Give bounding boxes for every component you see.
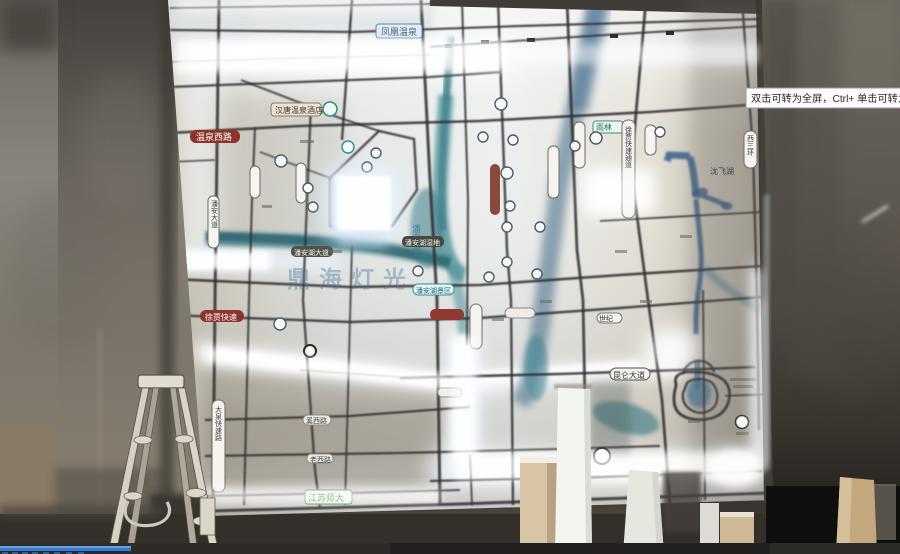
svg-text:沈飞湖: 沈飞湖 — [710, 166, 734, 176]
svg-text:双击可转为全屏，Ctrl+ 单击可转为: 双击可转为全屏，Ctrl+ 单击可转为 — [751, 92, 900, 105]
svg-text:奚西路: 奚西路 — [306, 416, 327, 425]
svg-text:鼎海灯光: 鼎海灯光 — [287, 266, 415, 292]
svg-text:潘安湖大道: 潘安湖大道 — [294, 248, 329, 257]
svg-text:徐贾快速: 徐贾快速 — [205, 312, 237, 322]
svg-text:温泉西路: 温泉西路 — [196, 131, 232, 142]
svg-text:昆仑大道: 昆仑大道 — [613, 370, 645, 380]
svg-text:徐贾快速通道: 徐贾快速通道 — [625, 125, 633, 169]
svg-text:老西路: 老西路 — [310, 455, 331, 464]
svg-text:西三环: 西三环 — [747, 135, 755, 157]
svg-text:潘安湖景区: 潘安湖景区 — [416, 286, 451, 295]
svg-text:世纪: 世纪 — [599, 314, 613, 323]
svg-text:凤凰温泉: 凤凰温泉 — [381, 26, 417, 37]
svg-text:雨林: 雨林 — [596, 122, 612, 132]
svg-text:大泉快速路: 大泉快速路 — [215, 405, 223, 442]
svg-text:汉唐温泉酒店: 汉唐温泉酒店 — [275, 105, 323, 115]
svg-text:潘安大道: 潘安大道 — [211, 199, 219, 229]
svg-text:潘安湖湿地: 潘安湖湿地 — [405, 238, 440, 247]
